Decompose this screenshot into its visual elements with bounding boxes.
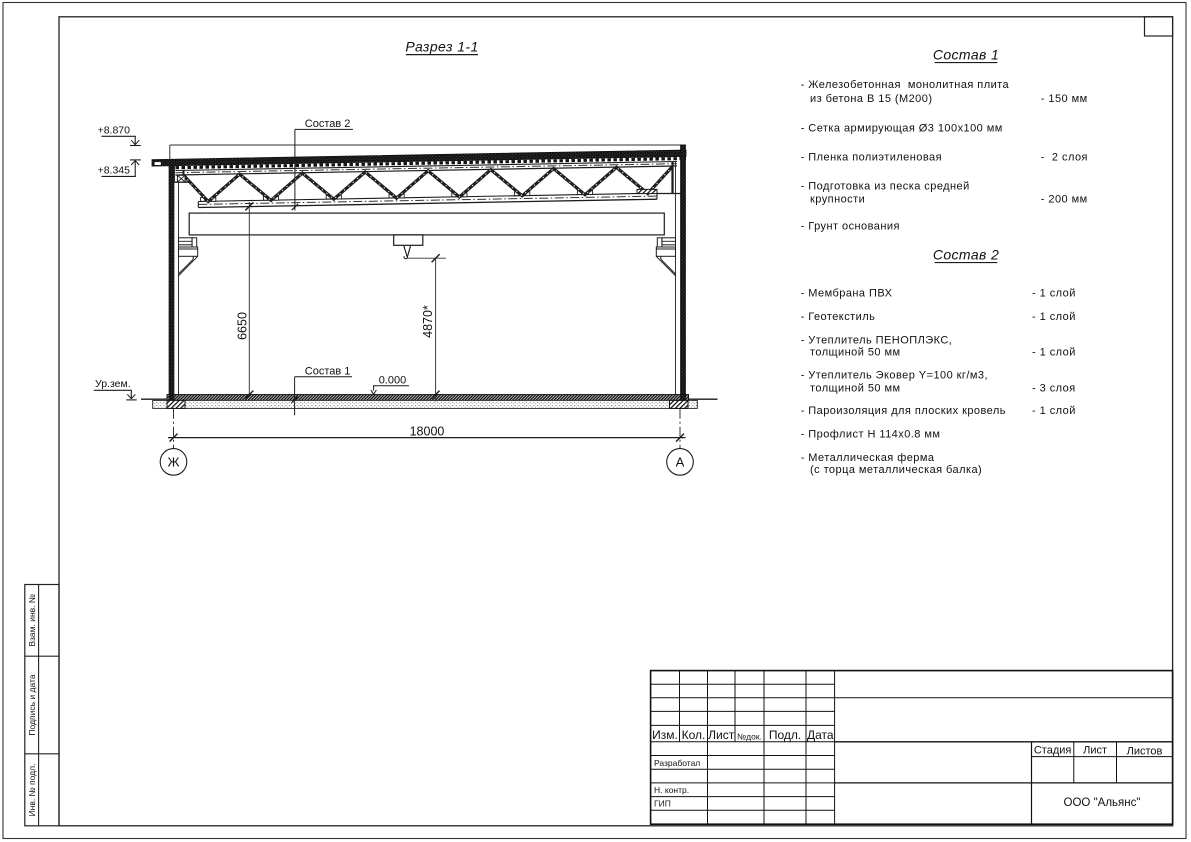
svg-text:Взам. инв. №: Взам. инв. № <box>27 594 37 647</box>
svg-text:Состав 2: Состав 2 <box>933 247 999 263</box>
svg-text:Состав 1: Состав 1 <box>933 47 999 63</box>
svg-text:- Сетка армирующая Ø3 100х100: - Сетка армирующая Ø3 100х100 мм <box>801 122 1003 134</box>
svg-text:А: А <box>676 455 685 470</box>
svg-text:Разработал: Разработал <box>654 758 700 768</box>
svg-text:из бетона В 15 (М200): из бетона В 15 (М200) <box>810 93 932 105</box>
svg-text:Подпись и дата: Подпись и дата <box>27 674 37 735</box>
svg-text:- Металлическая ферма: - Металлическая ферма <box>801 452 935 464</box>
svg-text:Изм.: Изм. <box>652 728 678 742</box>
svg-text:ООО "Альянс": ООО "Альянс" <box>1064 797 1141 809</box>
svg-text:+8.345: +8.345 <box>98 164 131 176</box>
svg-text:толщиной 50 мм: толщиной 50 мм <box>810 382 901 394</box>
svg-text:Ж: Ж <box>167 455 179 470</box>
svg-text:- 150 мм: - 150 мм <box>1041 93 1088 105</box>
svg-text:- 200 мм: - 200 мм <box>1041 193 1088 205</box>
svg-text:(с торца металлическая балка): (с торца металлическая балка) <box>810 464 982 476</box>
svg-text:Подл.: Подл. <box>769 728 801 742</box>
svg-text:- Утеплитель Эковер Y=100 кг/м: - Утеплитель Эковер Y=100 кг/м3, <box>801 370 988 382</box>
svg-text:18000: 18000 <box>410 424 445 438</box>
svg-text:Ур.зем.: Ур.зем. <box>95 378 131 390</box>
svg-text:4870*: 4870* <box>421 305 435 338</box>
svg-text:Состав 2: Состав 2 <box>305 118 351 130</box>
svg-text:Состав 1: Состав 1 <box>305 366 351 378</box>
svg-text:- 1 слой: - 1 слой <box>1032 347 1076 359</box>
svg-text:толщиной 50 мм: толщиной 50 мм <box>810 347 901 359</box>
svg-text:6650: 6650 <box>236 312 250 340</box>
svg-text:№док.: №док. <box>737 731 762 741</box>
svg-text:Кол.: Кол. <box>682 728 706 742</box>
svg-text:- Подготовка из песка средней: - Подготовка из песка средней <box>801 180 970 192</box>
svg-text:Листов: Листов <box>1127 746 1163 758</box>
svg-text:- 3 слоя: - 3 слоя <box>1032 382 1076 394</box>
svg-text:- Железобетонная монолитная п: - Железобетонная монолитная плита <box>801 79 1010 91</box>
svg-text:+8.870: +8.870 <box>98 125 131 137</box>
svg-text:Лист: Лист <box>1083 745 1107 757</box>
svg-text:0.000: 0.000 <box>379 375 407 387</box>
svg-text:- Утеплитель ПЕНОПЛЭКС,: - Утеплитель ПЕНОПЛЭКС, <box>801 334 953 346</box>
svg-text:Дата: Дата <box>807 728 834 742</box>
svg-text:- 1 слой: - 1 слой <box>1032 405 1076 417</box>
svg-text:- 1 слой: - 1 слой <box>1032 311 1076 323</box>
svg-text:ГИП: ГИП <box>654 799 671 809</box>
svg-text:Стадия: Стадия <box>1034 745 1072 757</box>
svg-text:крупности: крупности <box>810 193 865 205</box>
svg-text:- Грунт основания: - Грунт основания <box>801 221 900 233</box>
svg-text:- Мембрана ПВХ: - Мембрана ПВХ <box>801 288 893 300</box>
svg-text:- Пароизоляция для плоских кро: - Пароизоляция для плоских кровель <box>801 405 1006 417</box>
svg-text:- Профлист Н 114х0.8 мм: - Профлист Н 114х0.8 мм <box>801 428 941 440</box>
svg-text:Н. контр.: Н. контр. <box>654 785 689 795</box>
svg-text:- Геотекстиль: - Геотекстиль <box>801 311 876 323</box>
svg-text:- 1 слой: - 1 слой <box>1032 288 1076 300</box>
svg-text:- Пленка полиэтиленовая: - Пленка полиэтиленовая <box>801 152 942 164</box>
svg-text:- 2 слоя: - 2 слоя <box>1041 152 1088 164</box>
svg-text:Лист: Лист <box>708 728 735 742</box>
svg-text:Инв. № подл.: Инв. № подл. <box>27 764 37 817</box>
svg-text:Разрез 1-1: Разрез 1-1 <box>405 39 478 55</box>
